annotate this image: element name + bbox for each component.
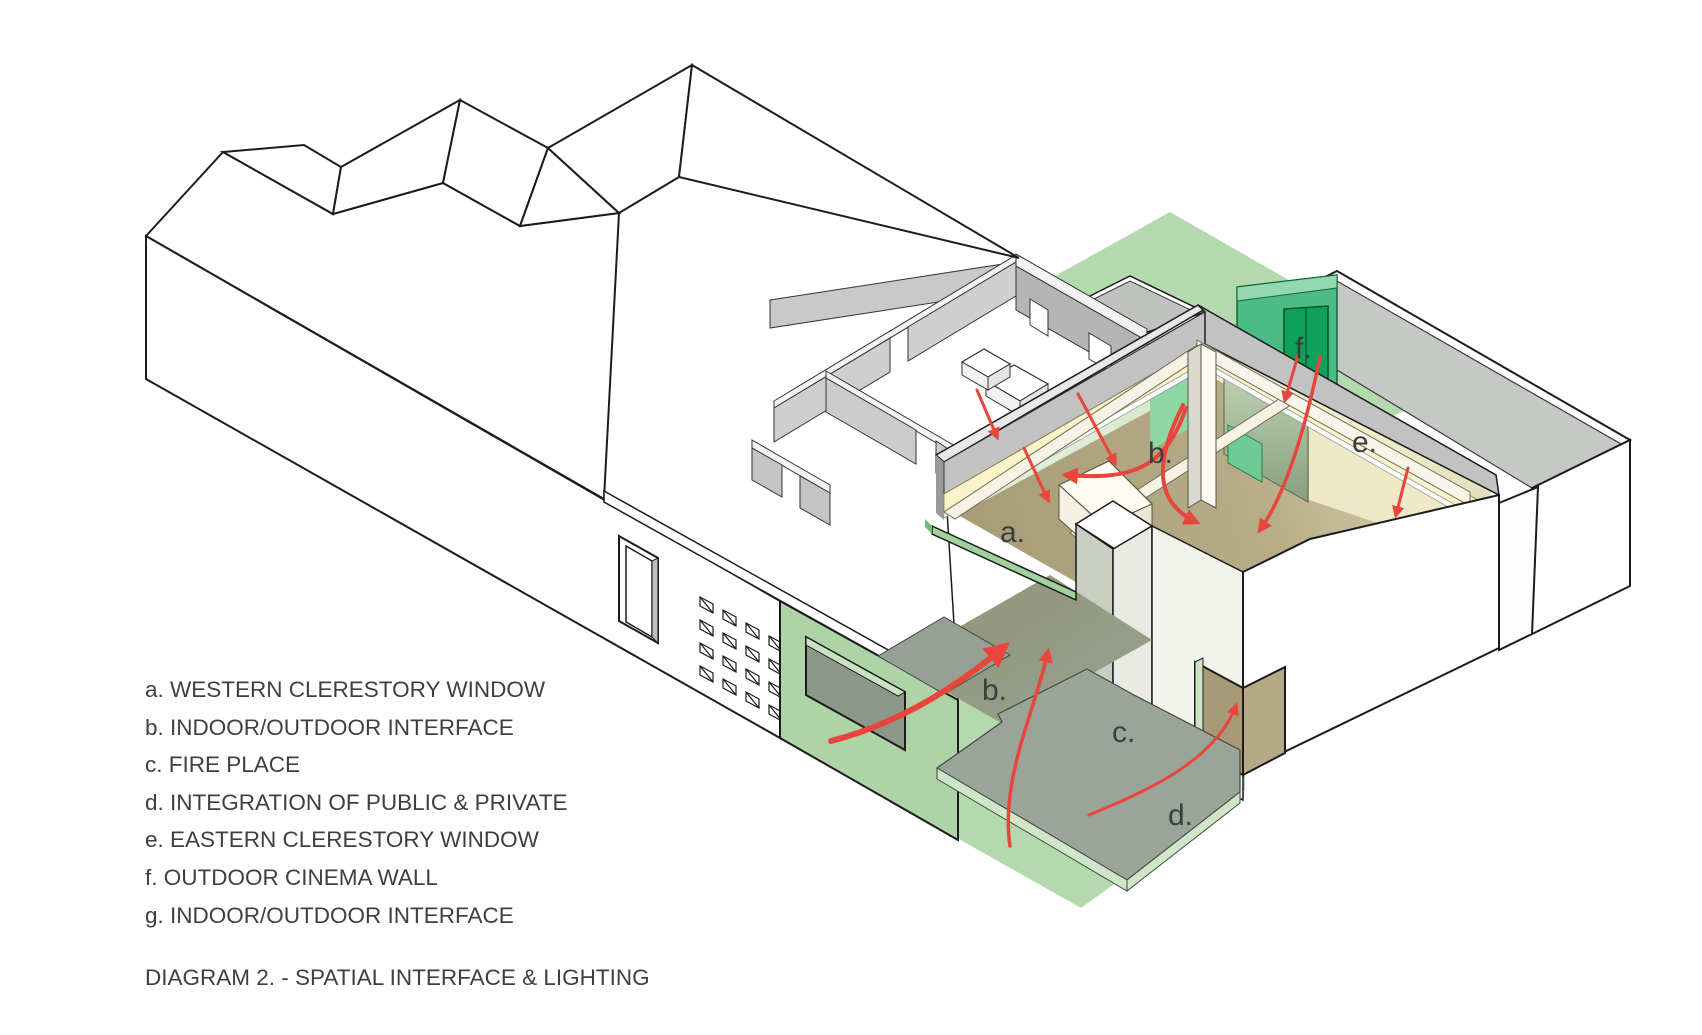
svg-text:a. WESTERN CLERESTORY WINDOW: a. WESTERN CLERESTORY WINDOW: [145, 677, 546, 702]
svg-text:d. INTEGRATION OF PUBLIC & PRI: d. INTEGRATION OF PUBLIC & PRIVATE: [145, 790, 568, 815]
svg-text:a.: a.: [1000, 516, 1025, 549]
svg-text:g. INDOOR/OUTDOOR INTERFACE: g. INDOOR/OUTDOOR INTERFACE: [145, 903, 514, 928]
svg-text:e. EASTERN CLERESTORY WINDOW: e. EASTERN CLERESTORY WINDOW: [145, 827, 540, 852]
svg-text:c. FIRE PLACE: c. FIRE PLACE: [145, 752, 300, 777]
svg-text:f. OUTDOOR CINEMA WALL: f. OUTDOOR CINEMA WALL: [145, 865, 438, 890]
svg-text:b.: b.: [1148, 437, 1173, 470]
svg-text:c.: c.: [1112, 716, 1135, 749]
svg-text:DIAGRAM 2. - SPATIAL INTERFACE: DIAGRAM 2. - SPATIAL INTERFACE & LIGHTIN…: [145, 965, 650, 990]
svg-text:e.: e.: [1352, 426, 1377, 459]
svg-text:b. INDOOR/OUTDOOR INTERFACE: b. INDOOR/OUTDOOR INTERFACE: [145, 715, 514, 740]
svg-text:f.: f.: [1295, 332, 1312, 365]
svg-text:b.: b.: [982, 674, 1007, 707]
svg-text:d.: d.: [1168, 799, 1193, 832]
